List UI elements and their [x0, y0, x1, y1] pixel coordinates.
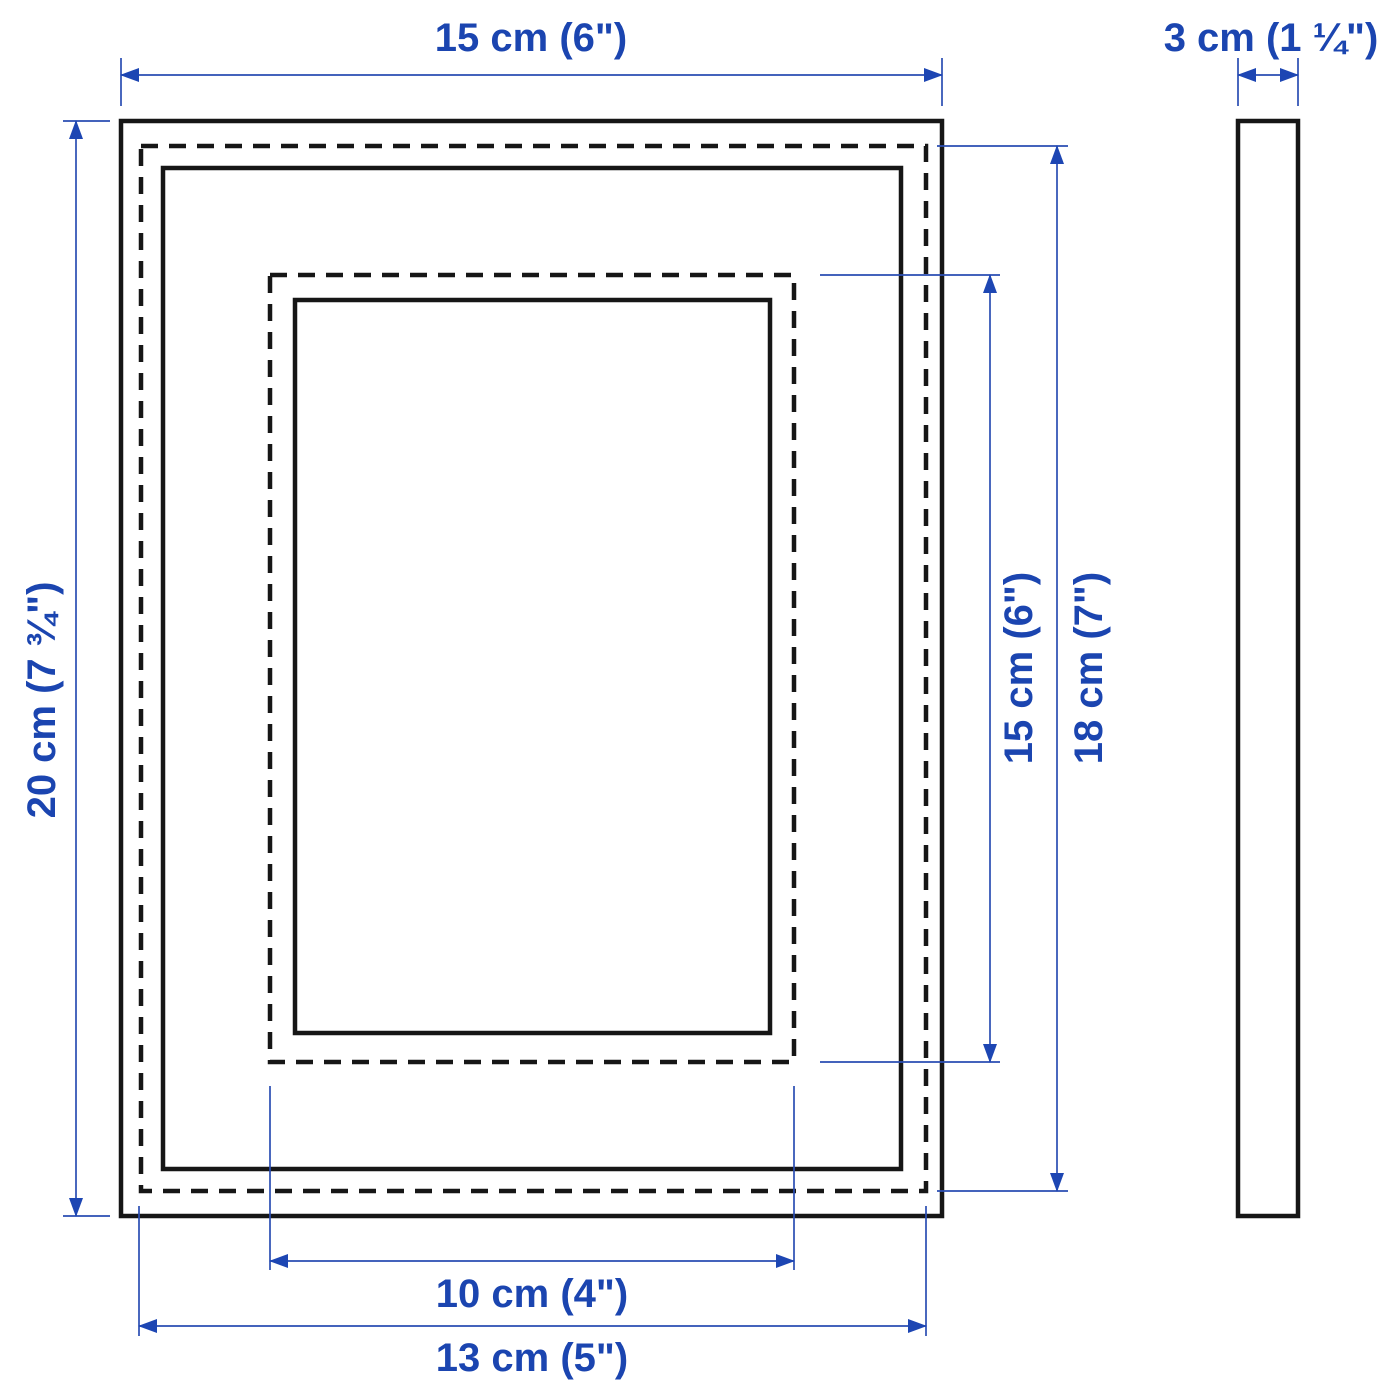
- frame-outer-outline: [121, 121, 942, 1216]
- frame-dimension-diagram: 15 cm (6") 3 cm (1 ¼") 20 cm (7 ¾") 15 c…: [0, 0, 1400, 1400]
- picture-height-label: 18 cm (7"): [1069, 572, 1109, 764]
- picture-width-label: 13 cm (5"): [436, 1338, 628, 1378]
- dim-picture-width: [139, 1206, 926, 1336]
- frame-depth-label: 3 cm (1 ¼"): [1164, 18, 1379, 58]
- frame-height-label: 20 cm (7 ¾"): [22, 582, 62, 819]
- picture-with-mat-dashed-outline: [270, 275, 794, 1062]
- dim-frame-depth: [1238, 58, 1298, 106]
- frame-opening-outline: [163, 168, 901, 1169]
- dim-frame-width: [121, 58, 942, 106]
- dim-picture-with-mat-width: [270, 1086, 794, 1270]
- picture-with-mat-width-label: 10 cm (4"): [436, 1274, 628, 1314]
- dim-frame-height: [63, 121, 110, 1216]
- dim-picture-with-mat-height: [820, 275, 1000, 1062]
- front-view: [121, 121, 942, 1216]
- picture-with-mat-height-label: 15 cm (6"): [999, 572, 1039, 764]
- side-view: [1238, 121, 1298, 1216]
- side-profile-outline: [1238, 121, 1298, 1216]
- mat-window-outline: [295, 300, 770, 1033]
- diagram-linework: [0, 0, 1400, 1400]
- frame-width-label: 15 cm (6"): [435, 18, 627, 58]
